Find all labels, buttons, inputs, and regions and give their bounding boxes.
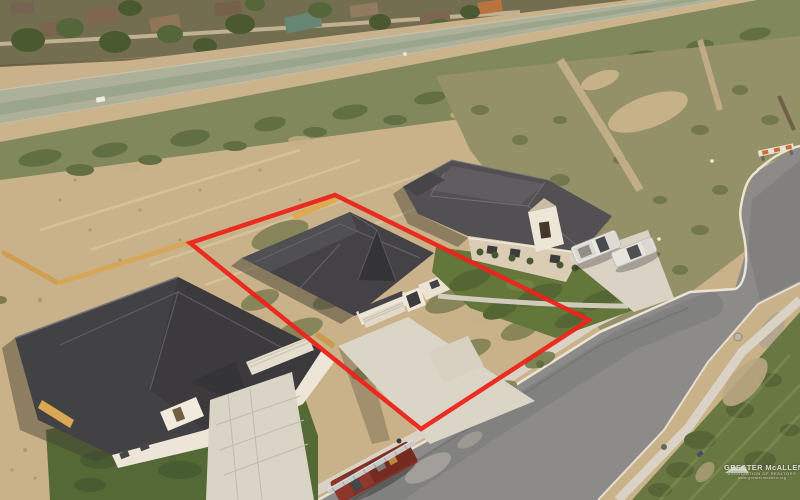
sunlight-tint <box>0 0 800 500</box>
aerial-photo-canvas <box>0 0 800 500</box>
aerial-photo: GREATER McALLEN ASSOCIATION OF REALTORS … <box>0 0 800 500</box>
